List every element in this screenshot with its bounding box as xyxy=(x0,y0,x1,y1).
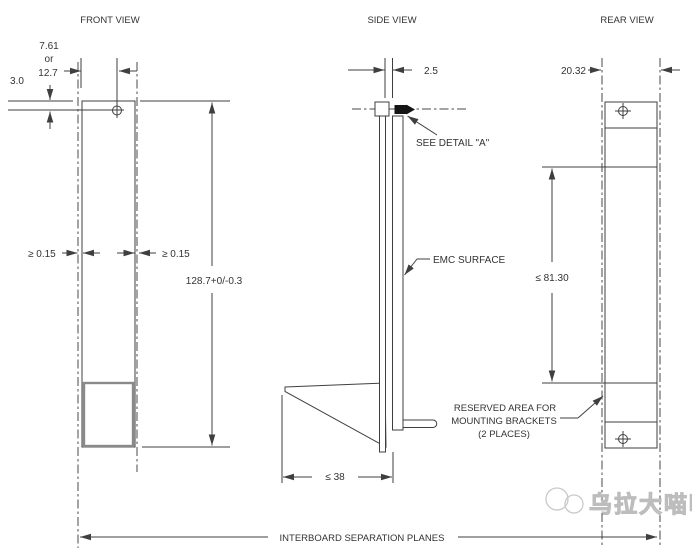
detail-a-screw xyxy=(395,106,407,114)
dim-bracket-depth: ≤ 38 xyxy=(325,472,345,483)
side-latch-block xyxy=(375,102,389,116)
label-reserved-1: RESERVED AREA FOR xyxy=(454,403,556,414)
interboard-dimension: INTERBOARD SEPARATION PLANES xyxy=(80,533,657,544)
label-see-detail: SEE DETAIL "A" xyxy=(416,138,490,149)
dim-offset-or: or xyxy=(45,54,55,65)
dim-emc-height: ≤ 81.30 xyxy=(535,273,569,284)
label-reserved-3: (2 PLACES) xyxy=(478,429,530,440)
front-view: FRONT VIEW 7.61 or 12.7 3.0 ≥ 0.15 ≥ 0.1… xyxy=(8,15,243,548)
dim-gap-right: ≥ 0.15 xyxy=(162,249,190,260)
rear-board xyxy=(605,102,657,448)
side-view-title: SIDE VIEW xyxy=(367,15,416,26)
rear-view-title: REAR VIEW xyxy=(600,15,653,26)
leader-line xyxy=(408,116,438,135)
guide-pin xyxy=(398,420,437,428)
label-reserved-2: MOUNTING BRACKETS xyxy=(451,416,557,427)
side-faceplate xyxy=(380,102,386,452)
drawing-svg: FRONT VIEW 7.61 or 12.7 3.0 ≥ 0.15 ≥ 0.1… xyxy=(0,0,692,551)
watermark-cat-icon xyxy=(546,488,568,510)
rear-view: REAR VIEW 20.32 ≤ 81.30 RESERVED AREA FO… xyxy=(451,15,680,548)
dim-offset: 12.7 xyxy=(38,68,58,79)
detail-a-screw-tip xyxy=(407,106,414,114)
side-triangle-bracket xyxy=(285,383,386,447)
dim-gap-left: ≥ 0.15 xyxy=(28,249,56,260)
engineering-drawing: FRONT VIEW 7.61 or 12.7 3.0 ≥ 0.15 ≥ 0.1… xyxy=(0,0,692,551)
dim-thickness: 2.5 xyxy=(424,66,438,77)
dim-offset-alt: 7.61 xyxy=(39,41,59,52)
watermark-cat-icon xyxy=(565,495,583,513)
label-interboard: INTERBOARD SEPARATION PLANES xyxy=(280,533,445,544)
front-view-title: FRONT VIEW xyxy=(80,15,139,26)
label-emc-surface: EMC SURFACE xyxy=(433,255,506,266)
dim-recess: 3.0 xyxy=(10,76,24,87)
watermark-text: 乌拉大喵喵 xyxy=(589,491,692,517)
dim-pitch: 20.32 xyxy=(561,66,586,77)
leader-arrow xyxy=(578,396,603,418)
front-bracket-area xyxy=(84,383,133,446)
dim-board-height: 128.7+0/-0.3 xyxy=(186,276,243,287)
watermark: 乌拉大喵喵 xyxy=(546,488,692,517)
leader-arrow xyxy=(405,259,418,275)
side-board xyxy=(393,116,404,430)
